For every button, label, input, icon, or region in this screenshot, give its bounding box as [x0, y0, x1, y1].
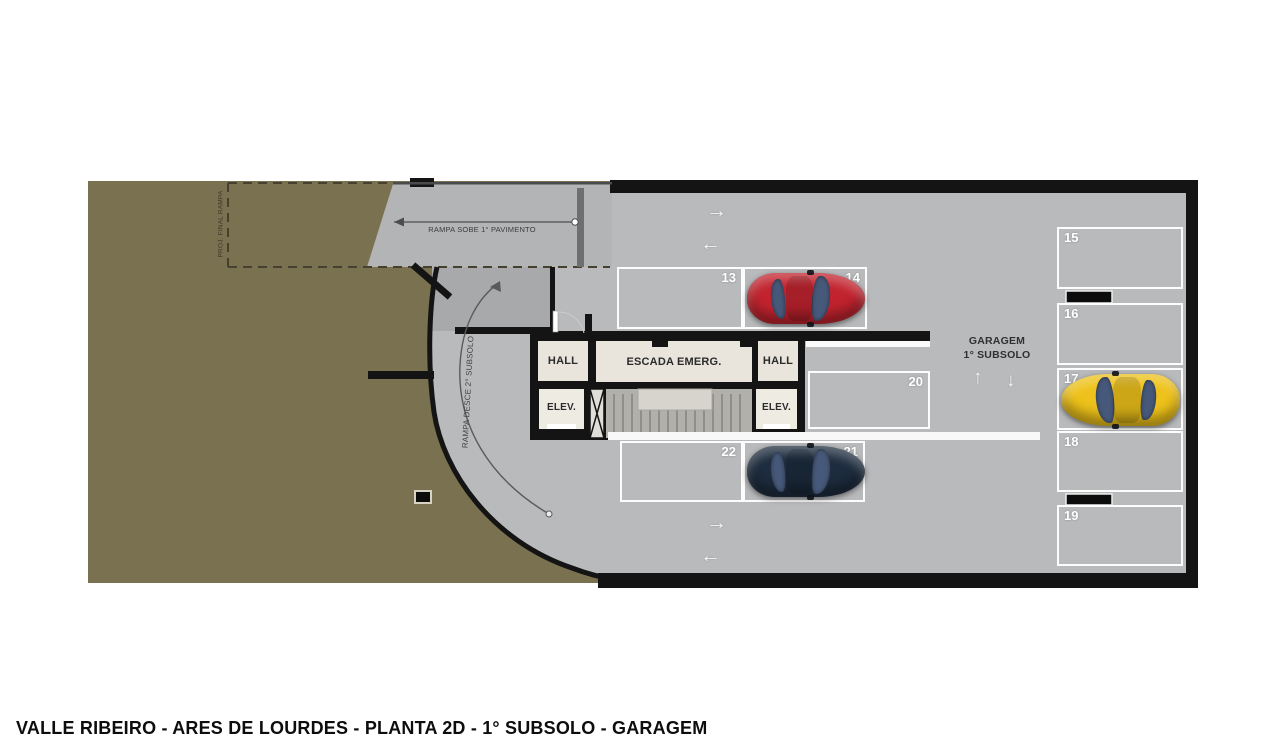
hall-left-label: HALL [538, 341, 588, 381]
stairs-label: ESCADA EMERG. [596, 341, 752, 382]
parking-spot-15: 15 [1057, 227, 1183, 289]
spot-number: 19 [1059, 508, 1083, 523]
ramp-top-edge [393, 182, 612, 185]
hall-right-label: HALL [758, 341, 798, 381]
car-mirror [1112, 371, 1119, 376]
column-upper [1066, 291, 1112, 303]
right-wall [1186, 180, 1198, 588]
car-roof [1113, 377, 1141, 423]
arrow-right-bottom-icon: → [706, 512, 727, 533]
ramp-down-area [432, 267, 553, 331]
ramp-divider [577, 188, 584, 267]
parking-spot-13: 13 [617, 267, 743, 329]
elevator-right-label: ELEV. [756, 389, 797, 425]
terrain-marker [415, 491, 431, 503]
page-title: VALLE RIBEIRO - ARES DE LOURDES - PLANTA… [16, 718, 707, 739]
spot-number: 13 [717, 270, 741, 285]
top-wall [610, 180, 1198, 193]
arrow-up-icon: ↑ [973, 368, 983, 387]
car-mirror [807, 495, 814, 500]
garage-label-line1: GARAGEM [942, 334, 1052, 348]
car-yellow [1060, 372, 1181, 428]
car-mirror [1112, 424, 1119, 429]
arrow-left-top-icon: ← [700, 233, 721, 254]
column-lower [1066, 494, 1112, 505]
arrow-down-icon: ↓ [1006, 371, 1016, 390]
parking-spot-22: 22 [620, 441, 743, 502]
stair-landing [638, 389, 712, 410]
arrow-right-top-icon: → [706, 200, 727, 221]
car-roof [786, 449, 814, 494]
parking-spot-20: 20 [808, 371, 930, 429]
car-red [746, 271, 866, 326]
elevator-left-label: ELEV. [539, 389, 584, 425]
garage-label-line2: 1° SUBSOLO [942, 348, 1052, 362]
parking-spot-18: 18 [1057, 431, 1183, 492]
spot-number: 22 [717, 444, 741, 459]
garage-level-label: GARAGEM 1° SUBSOLO [942, 334, 1052, 362]
spot-number: 16 [1059, 306, 1083, 321]
car-mirror [807, 443, 814, 448]
car-mirror [807, 322, 814, 327]
car-dark-blue [746, 444, 866, 499]
spot-number: 15 [1059, 230, 1083, 245]
parking-spot-16: 16 [1057, 303, 1183, 365]
spot-number: 18 [1059, 434, 1083, 449]
left-wall-stub [368, 371, 434, 379]
walkway-strip-upper [806, 341, 930, 347]
door-leaf [553, 311, 558, 332]
car-mirror [807, 270, 814, 275]
arrow-left-bottom-icon: ← [700, 545, 721, 566]
bottom-wall [598, 573, 1198, 588]
door-wall-stub [585, 314, 592, 333]
car-roof [786, 276, 814, 321]
ramp-projection-label: PROJ. FINAL RAMPA [218, 191, 225, 258]
walkway-strip-lower [608, 432, 1040, 440]
ramp-up-label: RAMPA SOBE 1° PAVIMENTO [398, 225, 566, 234]
spot-number: 20 [904, 374, 928, 389]
dimension-end-circle [572, 219, 578, 225]
parking-spot-19: 19 [1057, 505, 1183, 566]
guide-arrow-start-circle [546, 511, 552, 517]
floor-plan-page: 13 14 15 16 17 18 19 20 21 22 [0, 0, 1280, 747]
